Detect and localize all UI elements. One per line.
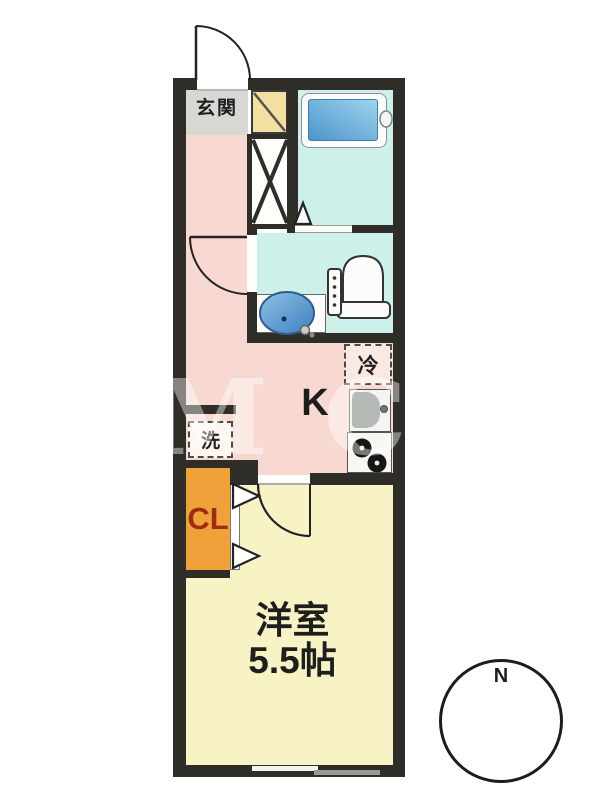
kitchen-label: K — [296, 383, 334, 425]
western-room-name: 洋室 — [256, 601, 330, 641]
wall-left — [173, 78, 186, 777]
wall-room-top-left — [230, 473, 258, 485]
room-door-threshold — [258, 475, 310, 485]
washing-machine-space: 洗 — [188, 421, 233, 458]
sink-basin — [352, 392, 380, 428]
western-room-label: 洋室 5.5帖 — [200, 596, 385, 686]
closet-label: CL — [186, 496, 230, 542]
bathtub-water — [308, 99, 378, 141]
wall-right — [393, 78, 405, 777]
floor-plan: 冷 洗 — [0, 0, 600, 800]
sliding-window-pane-1 — [252, 766, 318, 771]
wall-washroom-top-stub — [247, 225, 257, 235]
refrigerator-label: 冷 — [358, 350, 379, 380]
wall-closet-top — [182, 460, 230, 468]
wall-room-top-right — [310, 473, 393, 485]
compass-north-label: N — [489, 666, 513, 688]
washbasin-counter — [256, 294, 326, 333]
wall-top-right — [248, 78, 405, 90]
western-room-size: 5.5帖 — [248, 641, 336, 681]
wall-closet-bottom — [182, 570, 230, 578]
entrance-threshold — [197, 80, 248, 91]
gas-stove — [347, 432, 392, 473]
wall-bath-bottom-right — [352, 225, 393, 233]
wall-closet-corner — [230, 460, 258, 473]
refrigerator-space: 冷 — [344, 344, 392, 385]
wall-bath-bottom-left — [287, 225, 295, 233]
sliding-window-pane-2 — [314, 770, 380, 775]
genkan-label: 玄関 — [188, 95, 246, 123]
washer-label: 洗 — [201, 426, 220, 453]
shoe-cabinet — [251, 90, 288, 134]
closet-door-strip — [230, 478, 240, 570]
wall-washer-stub — [184, 405, 236, 414]
wall-bath-left — [287, 90, 298, 232]
washroom-doorway — [247, 235, 257, 292]
entrance-door-swing — [196, 26, 250, 80]
bath-door-threshold — [295, 225, 352, 233]
wall-washroom-bottom — [247, 333, 393, 343]
